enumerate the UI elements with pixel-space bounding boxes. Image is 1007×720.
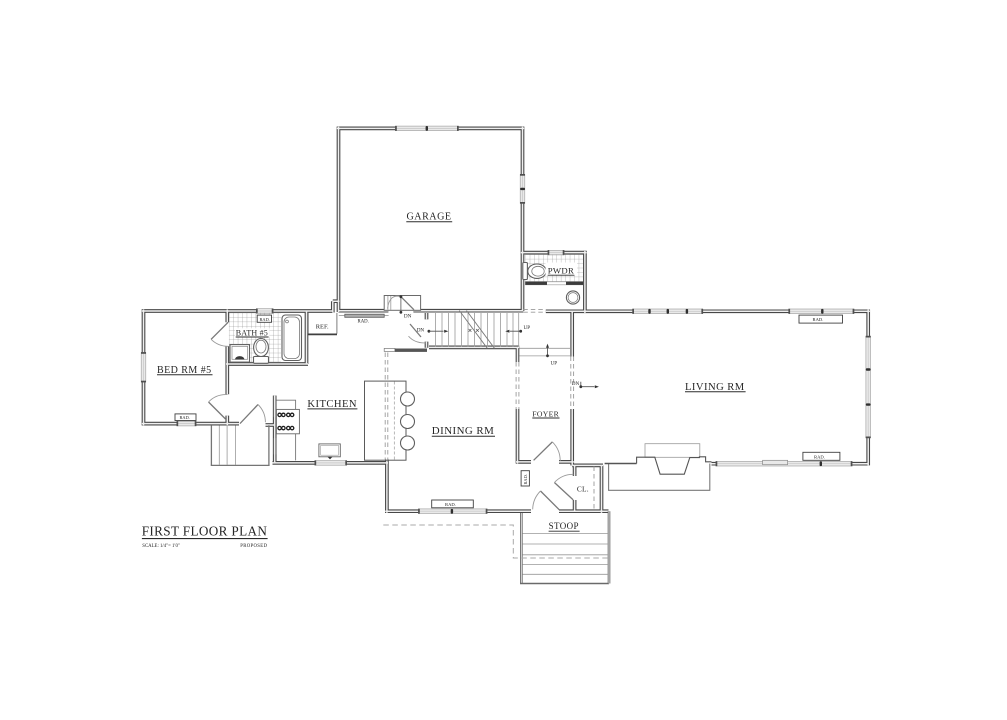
svg-text:CL.: CL. (577, 484, 589, 493)
svg-text:UP: UP (524, 325, 531, 331)
svg-text:DINING RM: DINING RM (432, 425, 494, 437)
svg-text:BATH #5: BATH #5 (236, 328, 268, 337)
svg-text:RAD.: RAD. (358, 320, 369, 325)
svg-text:KITCHEN: KITCHEN (307, 399, 357, 410)
svg-text:FOYER: FOYER (532, 409, 559, 418)
svg-text:RAD.: RAD. (523, 474, 528, 484)
svg-text:DN: DN (572, 381, 580, 387)
svg-text:STOOP: STOOP (549, 521, 579, 531)
svg-text:GARAGE: GARAGE (407, 212, 452, 223)
svg-text:PROPOSED: PROPOSED (240, 544, 267, 549)
svg-text:FIRST FLOOR PLAN: FIRST FLOOR PLAN (142, 523, 268, 538)
svg-text:RAD.: RAD. (814, 454, 825, 459)
svg-text:RAD.: RAD. (180, 415, 190, 420)
svg-text:UP: UP (551, 360, 558, 366)
svg-text:SCALE: 1/4"= 1′0": SCALE: 1/4"= 1′0" (142, 544, 180, 549)
svg-text:RAD.: RAD. (260, 317, 270, 322)
svg-text:REF.: REF. (316, 324, 329, 331)
svg-text:RAD.: RAD. (813, 317, 824, 322)
svg-text:BED RM #5: BED RM #5 (157, 365, 212, 376)
svg-text:DN: DN (417, 327, 425, 333)
svg-text:RAD.: RAD. (445, 502, 456, 507)
svg-text:DN: DN (404, 314, 412, 320)
svg-text:PWDR: PWDR (548, 265, 574, 275)
svg-text:LIVING RM: LIVING RM (685, 382, 745, 393)
